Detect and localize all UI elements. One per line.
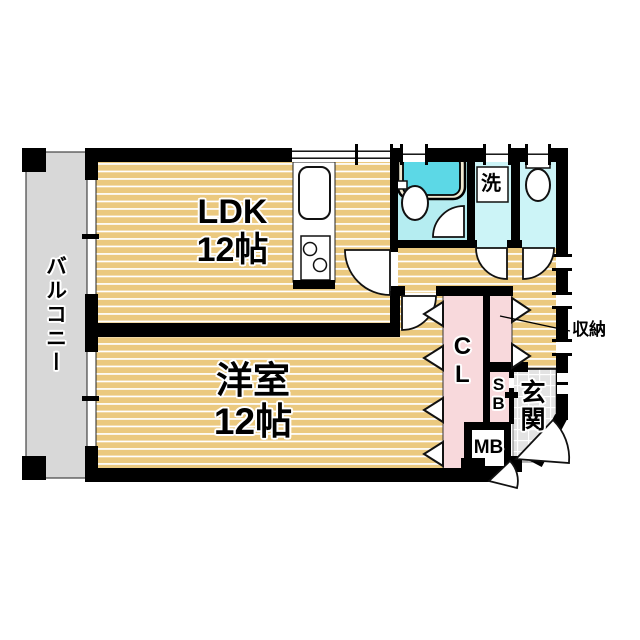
storage-label: 収納: [572, 320, 606, 339]
balcony-corner-post-top: [22, 148, 46, 172]
meter-box-label: MB: [470, 437, 507, 458]
washbasin: [402, 186, 428, 220]
floorplan-canvas: LDK 12帖 洋室 12帖 バルコニー CL 収納 洗 玄関 SB MB: [0, 0, 640, 640]
bathroom-bottom-wall: [390, 240, 467, 248]
window-mullion-tick: [82, 396, 99, 401]
balcony-corner-post-bottom: [22, 456, 46, 480]
western-room-label-line2: 12帖: [188, 401, 318, 442]
shoe-box-label: SB: [489, 375, 508, 413]
ldk-label-line2: 12帖: [175, 231, 290, 269]
hallway-south-wall: [436, 286, 513, 296]
western-room-label: 洋室 12帖: [188, 360, 318, 443]
storage-floor: [490, 296, 512, 362]
stove-burner: [314, 259, 327, 272]
window-mullion-tick: [82, 234, 99, 239]
entrance-label: 玄関: [517, 379, 545, 433]
storage-bottom-wall: [483, 362, 528, 372]
bottom-wall: [88, 468, 513, 482]
wash-toilet-wall: [511, 148, 520, 248]
balcony-label: バルコニー: [43, 255, 67, 425]
stove: [301, 236, 330, 280]
kitchen-counter: [293, 162, 335, 289]
ldk-label: LDK 12帖: [175, 193, 290, 269]
washroom-label: 洗: [481, 173, 501, 195]
ldk-label-line1: LDK: [175, 193, 290, 231]
closet-label: CL: [448, 333, 475, 389]
kitchen-sink: [299, 167, 330, 219]
western-room-label-line1: 洋室: [188, 360, 318, 401]
stove-burner: [304, 243, 317, 256]
bath-wash-wall: [467, 148, 475, 248]
toilet-bowl: [526, 169, 550, 201]
room-divider-wall: [86, 323, 400, 337]
floorplan-drawing: [0, 0, 640, 640]
